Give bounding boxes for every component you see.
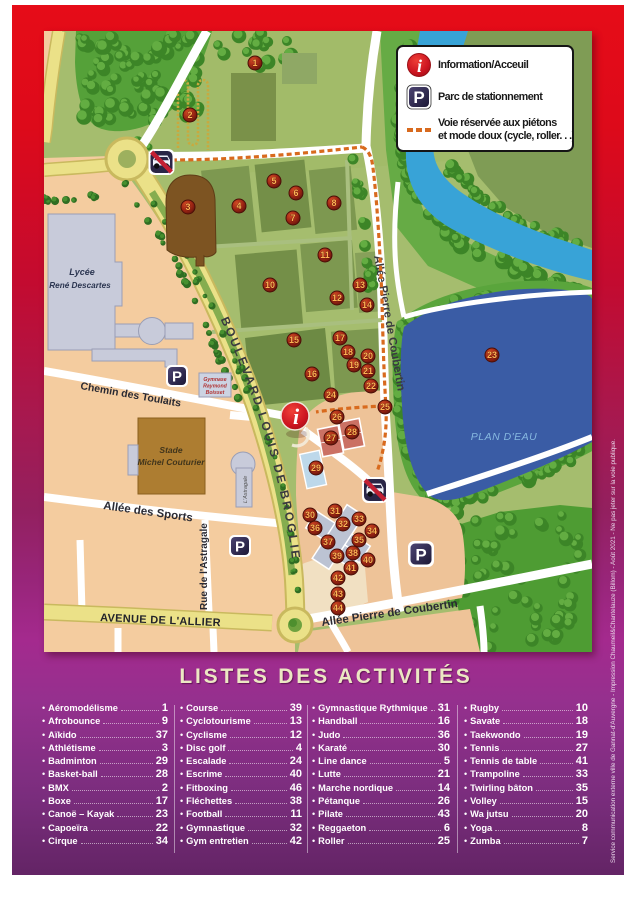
svg-text:35: 35: [354, 535, 364, 545]
svg-text:L'Astragale: L'Astragale: [243, 476, 249, 503]
svg-text:29: 29: [311, 463, 321, 473]
svg-text:33: 33: [354, 514, 364, 524]
svg-text:i: i: [417, 56, 422, 76]
svg-text:15: 15: [289, 335, 299, 345]
svg-text:17: 17: [335, 333, 345, 343]
svg-text:20: 20: [363, 351, 373, 361]
svg-text:31: 31: [330, 506, 340, 516]
svg-text:5: 5: [271, 176, 276, 186]
svg-text:24: 24: [326, 390, 336, 400]
svg-text:PLAN D'EAU: PLAN D'EAU: [471, 431, 538, 443]
svg-text:43: 43: [333, 589, 343, 599]
svg-text:6: 6: [293, 188, 298, 198]
svg-text:Raymond: Raymond: [203, 384, 227, 390]
svg-text:P: P: [413, 88, 424, 107]
svg-text:19: 19: [349, 360, 359, 370]
svg-text:P: P: [235, 539, 245, 556]
svg-text:P: P: [172, 369, 182, 386]
svg-text:30: 30: [305, 510, 315, 520]
svg-text:1: 1: [252, 58, 257, 68]
svg-text:32: 32: [338, 519, 348, 529]
svg-text:Gymnase: Gymnase: [203, 377, 226, 383]
svg-text:10: 10: [265, 280, 275, 290]
svg-text:14: 14: [362, 300, 372, 310]
svg-text:23: 23: [487, 350, 497, 360]
svg-text:28: 28: [347, 427, 357, 437]
svg-text:4: 4: [236, 201, 241, 211]
svg-text:Stade: Stade: [159, 445, 182, 455]
svg-text:27: 27: [326, 433, 336, 443]
svg-text:P: P: [415, 546, 426, 565]
svg-text:22: 22: [366, 381, 376, 391]
svg-text:11: 11: [320, 250, 330, 260]
svg-text:8: 8: [331, 198, 336, 208]
svg-text:18: 18: [343, 347, 353, 357]
svg-text:39: 39: [332, 551, 342, 561]
svg-text:Michel Couturier: Michel Couturier: [137, 457, 205, 467]
svg-text:16: 16: [307, 369, 317, 379]
svg-text:37: 37: [323, 537, 333, 547]
svg-text:Lycée: Lycée: [69, 267, 95, 277]
svg-text:38: 38: [348, 548, 358, 558]
svg-text:René Descartes: René Descartes: [49, 281, 111, 290]
svg-text:26: 26: [332, 412, 342, 422]
svg-text:34: 34: [367, 526, 377, 536]
svg-text:21: 21: [363, 366, 373, 376]
svg-text:36: 36: [310, 523, 320, 533]
svg-text:12: 12: [332, 293, 342, 303]
svg-text:3: 3: [185, 202, 190, 212]
svg-text:13: 13: [355, 280, 365, 290]
svg-text:41: 41: [346, 563, 356, 573]
svg-text:7: 7: [290, 213, 295, 223]
svg-text:i: i: [293, 404, 300, 429]
svg-text:44: 44: [333, 603, 343, 613]
svg-text:40: 40: [363, 555, 373, 565]
svg-text:25: 25: [380, 402, 390, 412]
svg-text:2: 2: [187, 110, 192, 120]
svg-text:Rue de l'Astragale: Rue de l'Astragale: [199, 523, 210, 610]
svg-text:Boisset: Boisset: [206, 390, 225, 396]
svg-text:42: 42: [333, 573, 343, 583]
